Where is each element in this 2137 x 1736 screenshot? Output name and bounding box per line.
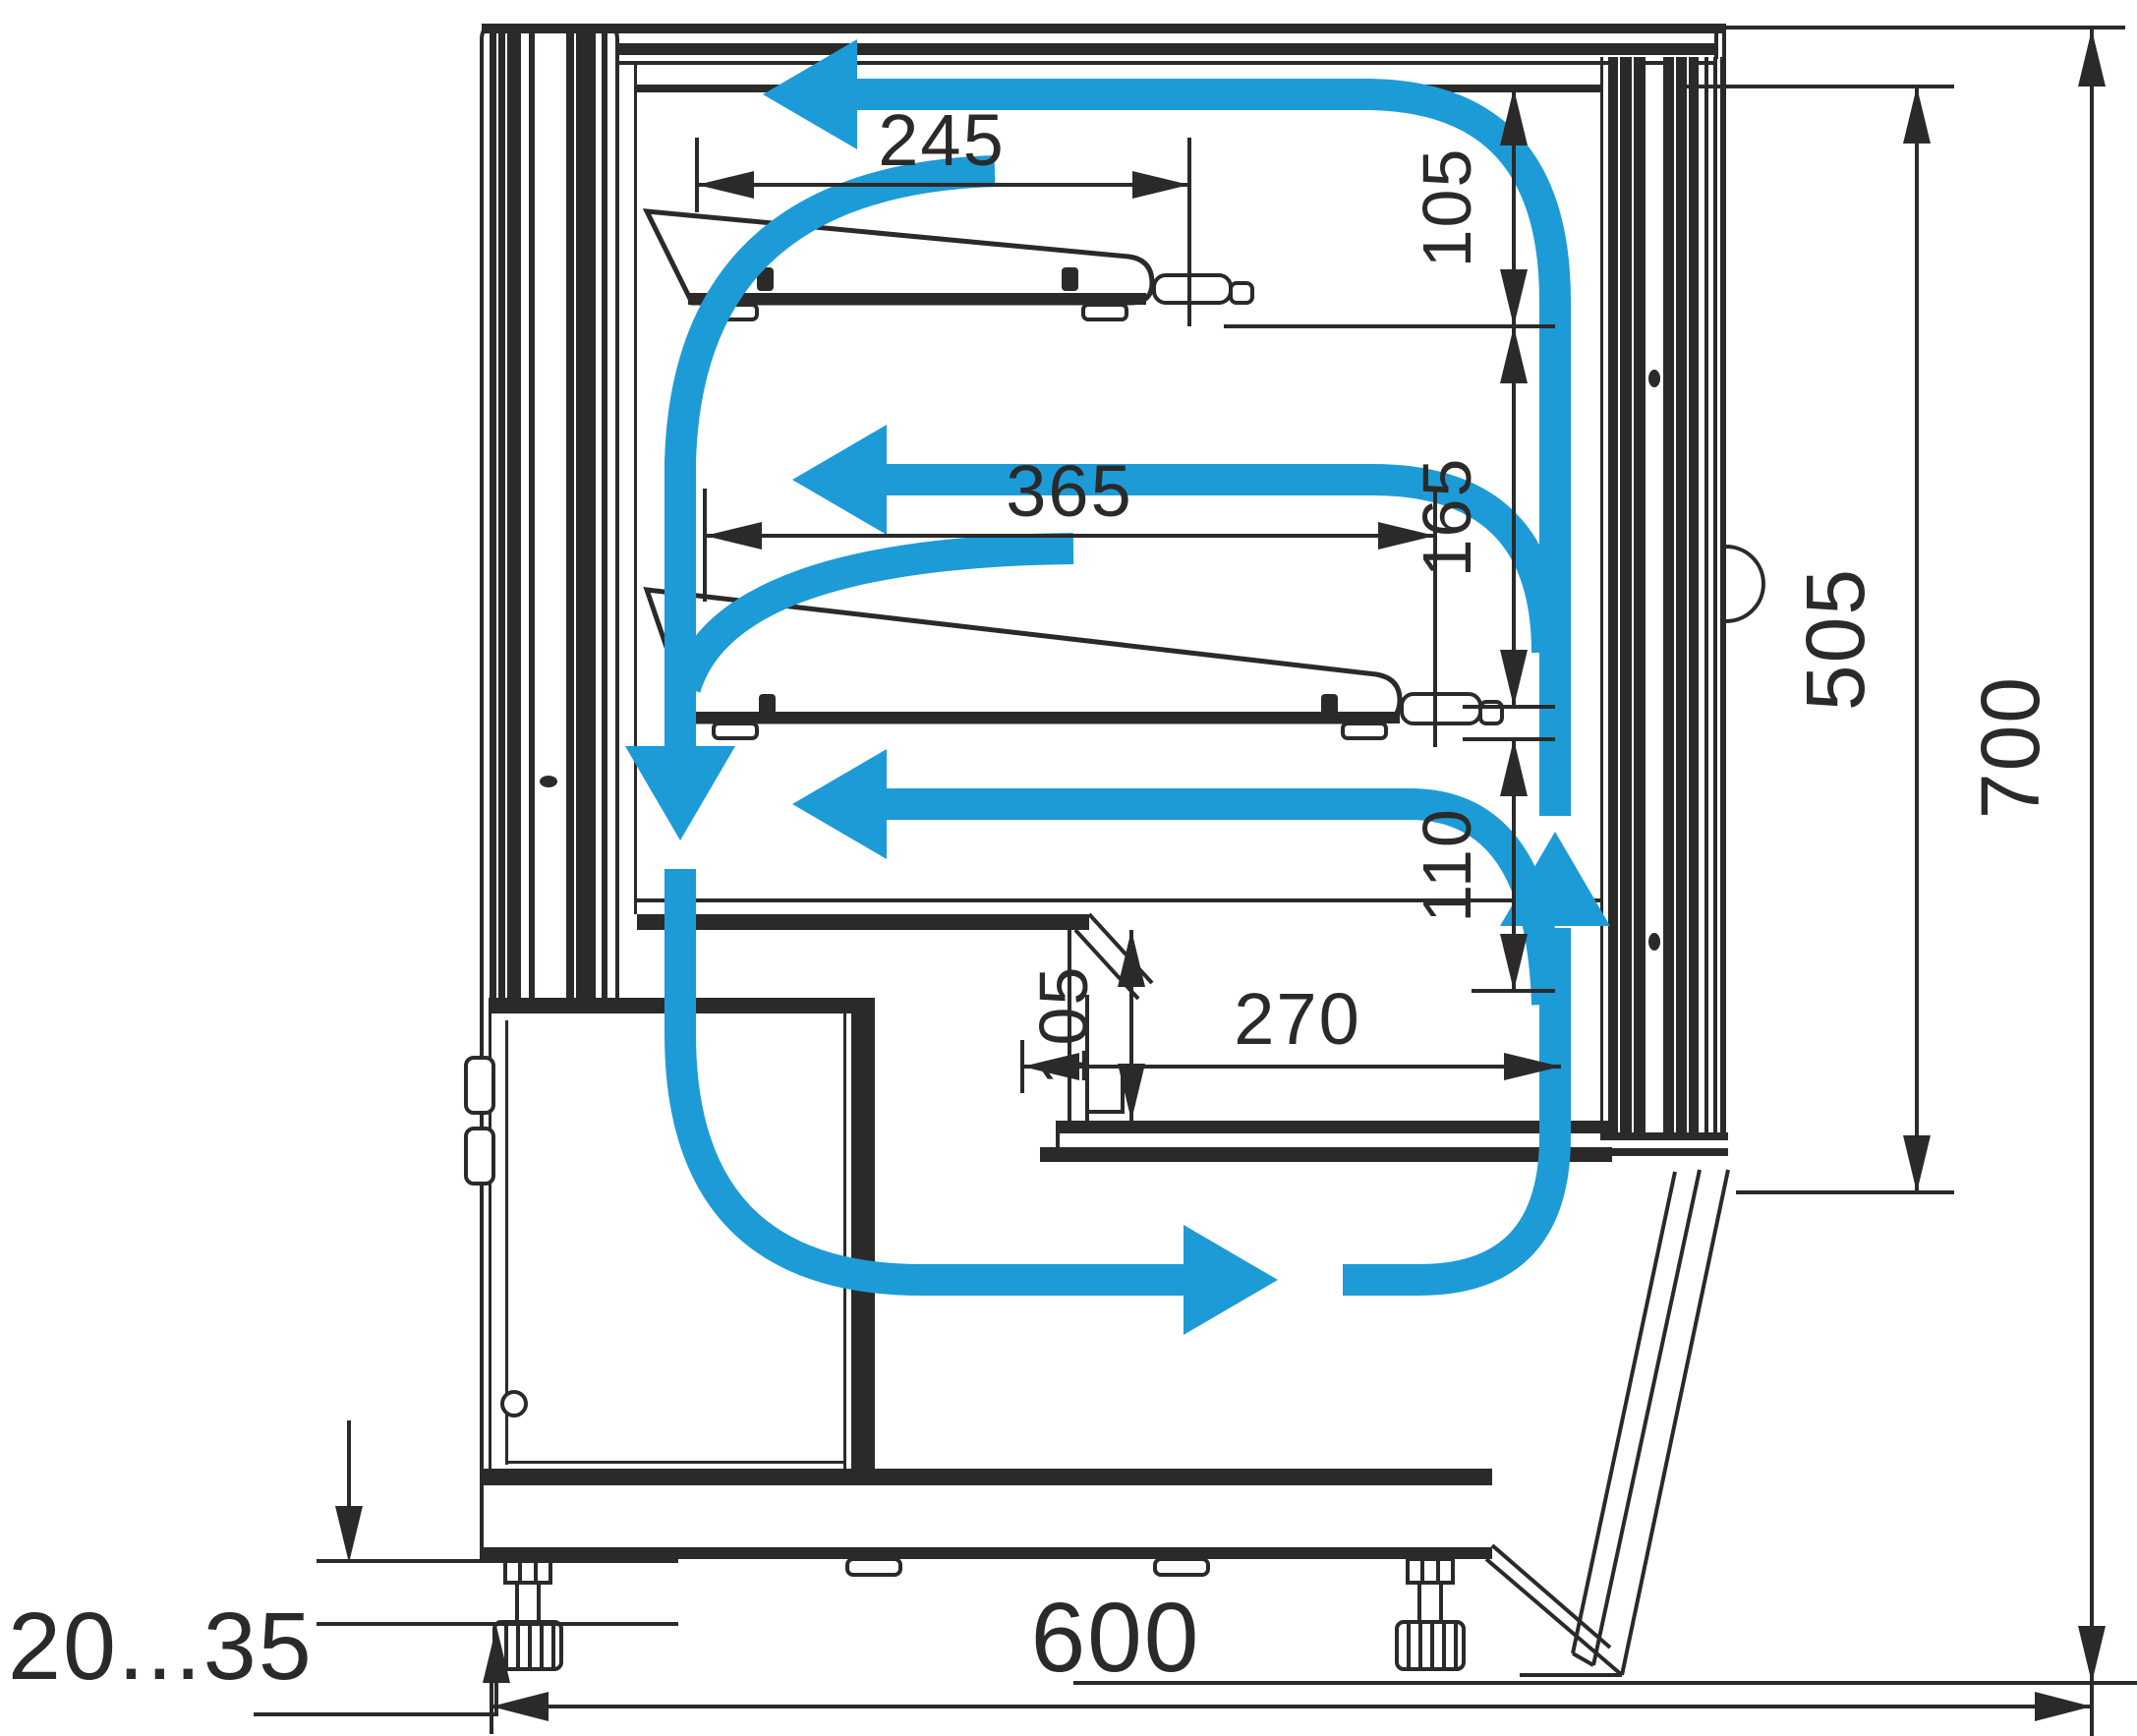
dim-label-165: 165: [1409, 457, 1485, 578]
rear-wall-hairline: [496, 31, 498, 998]
glass-hairline: [1674, 57, 1676, 1138]
glass-hairline: [1632, 57, 1634, 1138]
shelf-top-front-bracket: [1154, 275, 1231, 303]
dim-label-270: 270: [1234, 978, 1360, 1060]
shelf-top-front-hook: [1231, 283, 1252, 303]
base-tab: [1155, 1559, 1208, 1575]
leg-dim-arrow-tail: [494, 1683, 498, 1714]
foot-shaft: [1419, 1583, 1441, 1626]
rear-wall-hairline: [574, 31, 576, 998]
rear-wall-band: [566, 31, 596, 998]
rear-wall-band: [529, 31, 535, 998]
rear-wall-hairline: [505, 31, 507, 998]
leg-lower-ref-line: [317, 1622, 678, 1626]
top-outer-band: [482, 24, 1726, 33]
shelf-top-clip: [1083, 305, 1126, 319]
leg-dim-leader-line: [254, 1712, 498, 1716]
glass-band: [1608, 57, 1646, 1138]
base-line: [482, 1482, 1492, 1485]
shelf-middle-bolt-icon: [759, 694, 776, 718]
shelf-middle-bottom-rail: [688, 712, 1400, 723]
door-inner-line: [505, 1461, 845, 1464]
dim-label-20-35: 20...35: [8, 1592, 314, 1700]
well-floor-cap: [1056, 1121, 1060, 1162]
display-case-section-diagram: 245 365 105 165 110: [0, 0, 2137, 1736]
glass-bottom-band: [1600, 1132, 1728, 1140]
door-hinge-tab: [466, 1128, 493, 1184]
glass-line: [1600, 57, 1603, 1138]
dim-label-365: 365: [1006, 450, 1132, 532]
leg-upper-ref-line: [317, 1559, 678, 1563]
foot-nut: [1408, 1559, 1453, 1583]
dim-label-105-top: 105: [1409, 147, 1485, 268]
well-floor-band: [1040, 1147, 1612, 1162]
glass-outer-line: [1720, 57, 1726, 1138]
leg-dim-arrow-tail: [347, 1420, 351, 1507]
glass-line: [1704, 57, 1708, 1138]
front-corner-tie: [1722, 28, 1726, 59]
base-top-band: [482, 1469, 1492, 1482]
base-left-edge: [480, 1469, 484, 1559]
dim-label-600: 600: [1031, 1583, 1201, 1693]
drawing-stage: 245 365 105 165 110: [0, 0, 2137, 1736]
foot-shaft: [517, 1583, 539, 1626]
glass-hairline: [1618, 57, 1620, 1138]
base-tab: [847, 1559, 900, 1575]
front-corner-tie: [1714, 29, 1718, 59]
dim-label-245: 245: [878, 99, 1005, 181]
shelf-middle-clip: [714, 723, 757, 738]
dim-label-700: 700: [1964, 675, 2056, 819]
door-hinge-tab: [466, 1058, 493, 1113]
compartment-right-inner-line: [843, 1013, 846, 1472]
base-bottom-band: [482, 1547, 1492, 1559]
dim-label-110: 110: [1409, 807, 1485, 923]
glass-line: [1713, 57, 1717, 1138]
dim-label-505: 505: [1789, 567, 1881, 711]
glass-bolt-icon: [1648, 370, 1660, 387]
rear-wall-band: [602, 31, 607, 998]
rear-inner-face-line: [634, 65, 637, 914]
shelf-middle-bolt-icon: [1321, 694, 1338, 718]
shelf-top-bottom-rail: [688, 293, 1146, 305]
step-top-band: [637, 914, 1089, 930]
rear-wall: [482, 26, 617, 998]
shelf-middle-clip: [1343, 723, 1386, 738]
shelf-top-bolt-icon: [1062, 267, 1078, 291]
glass-bottom-band: [1600, 1148, 1728, 1156]
door-hole-icon: [502, 1392, 526, 1416]
glass-band: [1663, 57, 1699, 1138]
compartment-right-wall: [851, 1013, 875, 1472]
ground-line: [1073, 1681, 2137, 1685]
top-inner-line: [617, 61, 1716, 65]
glass-bolt-icon: [1648, 933, 1660, 951]
top-inner-band: [617, 43, 1716, 55]
rear-wall-bolt-icon: [540, 776, 557, 787]
well-floor-band: [1058, 1121, 1610, 1133]
glass-hairline: [1687, 57, 1689, 1138]
